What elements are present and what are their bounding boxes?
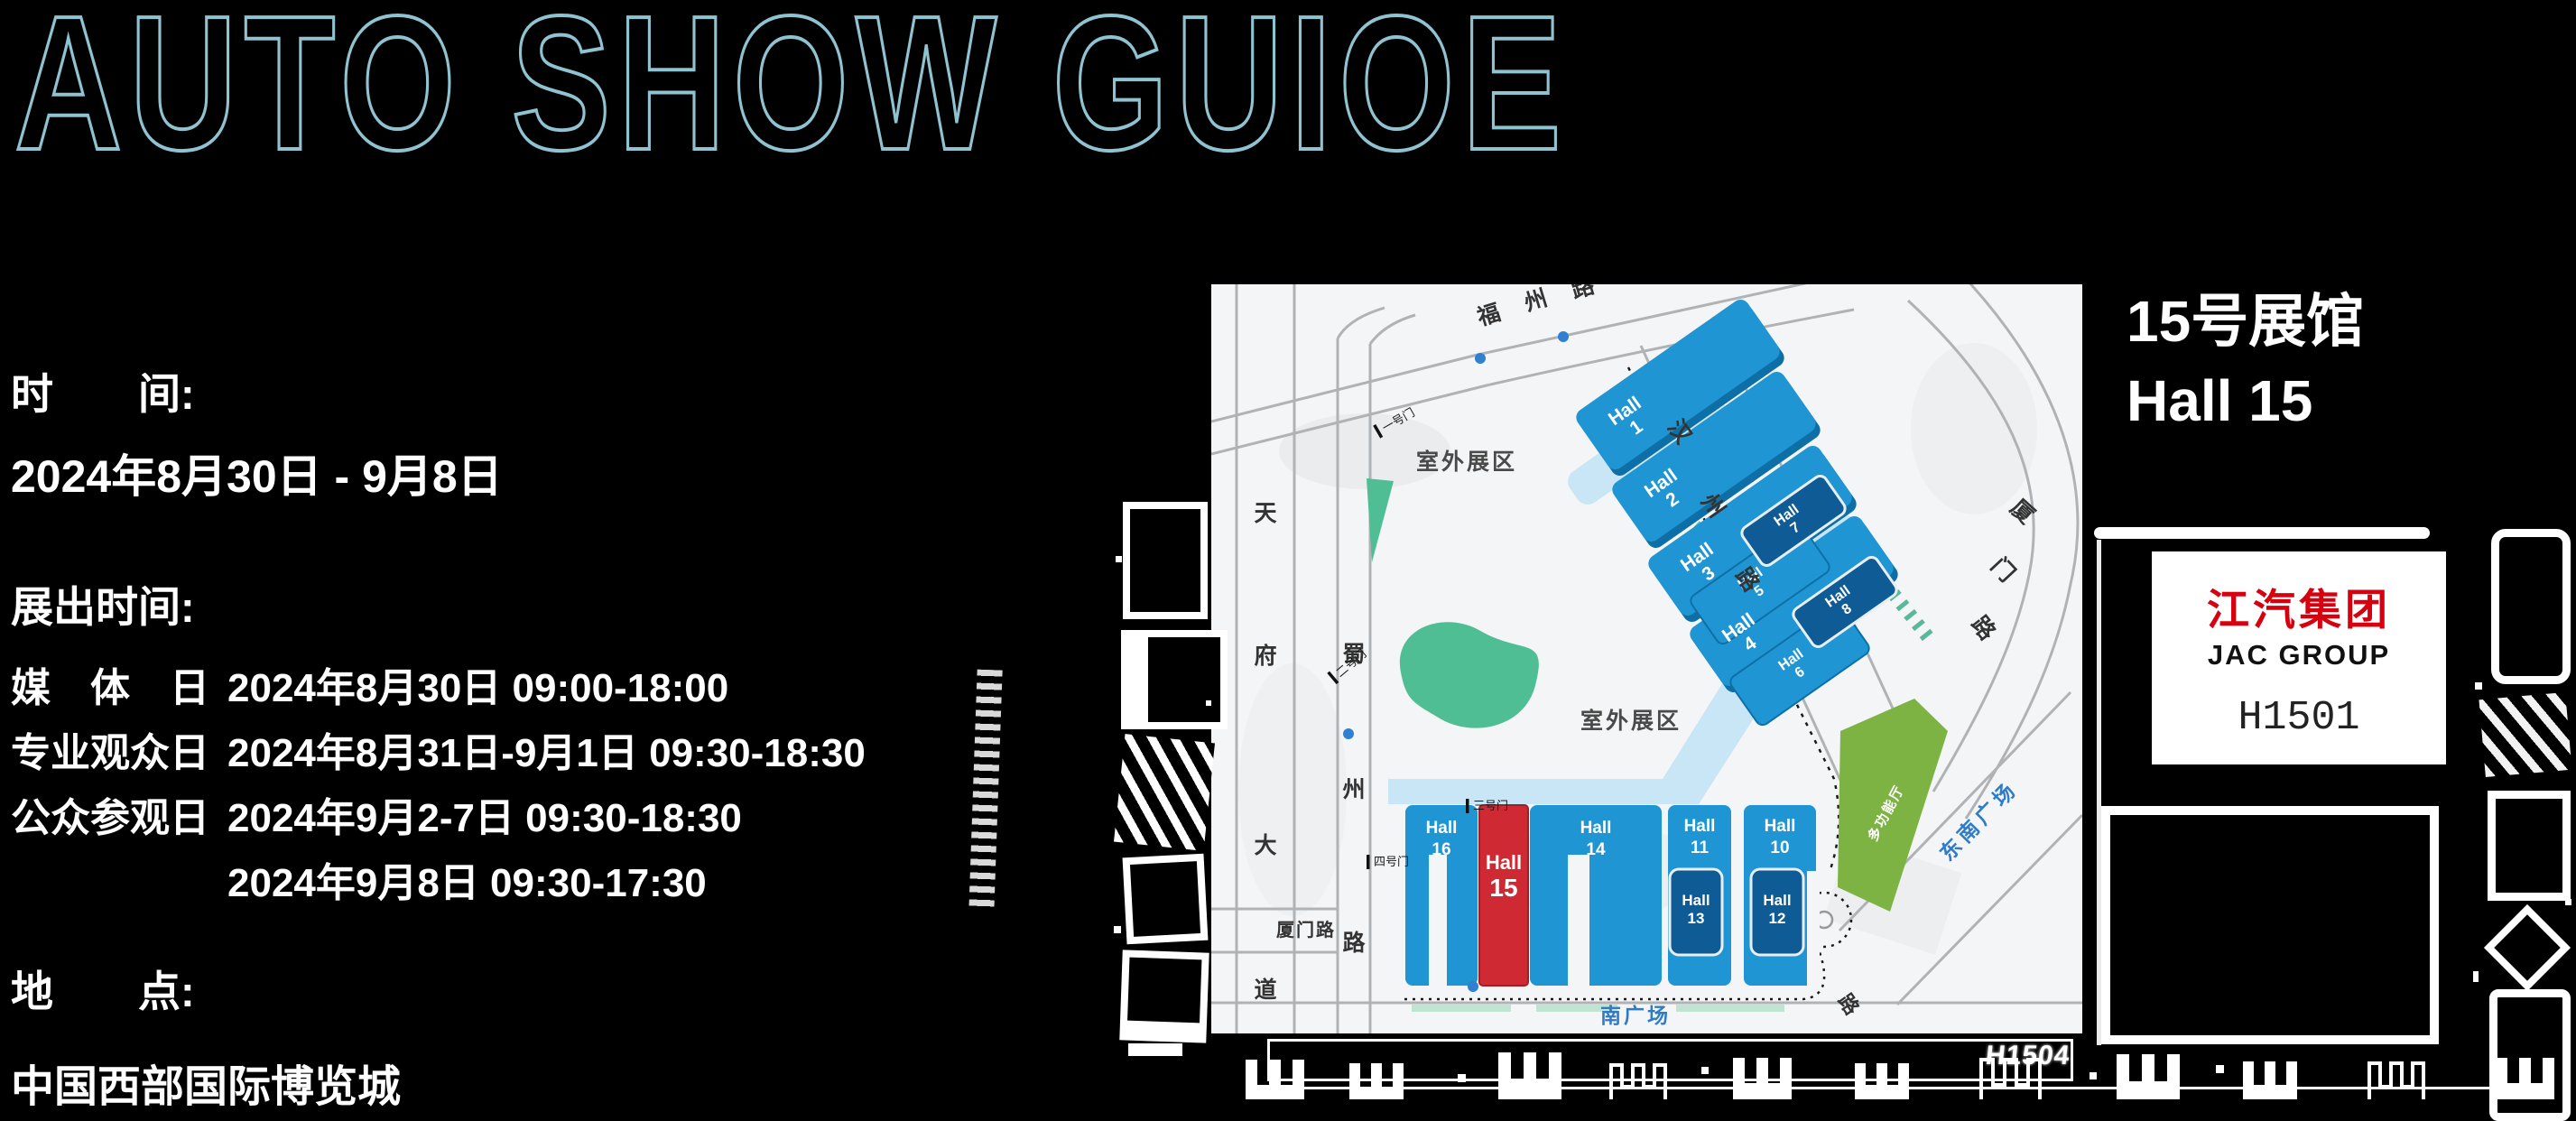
- time-value: 2024年8月30日 - 9月8日: [11, 440, 503, 505]
- svg-text:州: 州: [1342, 777, 1365, 802]
- schedule-row: 公众参观日2024年9月2-7日 09:30-18:30: [11, 785, 742, 843]
- svg-text:厦门路: 厦门路: [1276, 919, 1336, 940]
- place-label: 地 点:: [11, 957, 195, 1019]
- schedule-row: 专业观众日2024年8月31日-9月1日 09:30-18:30: [11, 720, 866, 778]
- exhibitor-logo-cn: 江汽集团: [2207, 575, 2391, 637]
- gate-3: 三号门: [1466, 799, 1508, 813]
- svg-text:Hall15: Hall15: [1486, 851, 1522, 902]
- venue-map-canvas: Hall1 Hall2 Hall3 Hall4 Hall5 Hall6 Hall…: [1211, 284, 2082, 1033]
- schedule-row-value: 2024年9月2-7日 09:30-18:30: [227, 796, 742, 840]
- svg-text:路: 路: [1834, 990, 1865, 1020]
- schedule-row-value: 2024年8月30日 09:00-18:00: [227, 666, 728, 710]
- svg-text:三号门: 三号门: [1473, 799, 1508, 812]
- glitch-column-left: [1119, 502, 1220, 1072]
- svg-text:路: 路: [1569, 284, 1598, 303]
- venue-map: Hall1 Hall2 Hall3 Hall4 Hall5 Hall6 Hall…: [1211, 284, 2082, 1089]
- booth-hall-title: 15号展馆 Hall 15: [2127, 282, 2364, 440]
- booth-hall-title-cn: 15号展馆: [2127, 282, 2364, 361]
- schedule-row-value: 2024年8月31日-9月1日 09:30-18:30: [227, 731, 866, 775]
- schedule-row: 媒 体 日2024年8月30日 09:00-18:00: [11, 655, 728, 713]
- pond: [1400, 622, 1539, 727]
- schedule-row-label: 公众参观日: [11, 785, 227, 843]
- svg-text:四号门: 四号门: [1374, 855, 1409, 868]
- schedule-row-label: 专业观众日: [11, 720, 227, 778]
- svg-text:府: 府: [1254, 643, 1276, 669]
- svg-text:路: 路: [1967, 612, 2001, 646]
- schedule-row-value: 2024年9月8日 09:30-17:30: [227, 861, 707, 905]
- exhibitor-logo-en: JAC GROUP: [2208, 639, 2390, 672]
- exhibitor-card: 江汽集团 JAC GROUP H1501: [2152, 551, 2446, 764]
- empty-booth-outline: [2101, 806, 2439, 1044]
- lawn-strips: [1412, 1005, 1784, 1012]
- glitch-noise-strip: [968, 670, 1002, 913]
- svg-text:路: 路: [1342, 931, 1366, 956]
- booth-hall-title-en: Hall 15: [2127, 361, 2364, 440]
- svg-text:室外展区: 室外展区: [1416, 449, 1517, 475]
- svg-text:南广场: 南广场: [1600, 1004, 1671, 1027]
- svg-text:大: 大: [1254, 833, 1276, 858]
- schedule-row-label: 媒 体 日: [11, 655, 227, 713]
- svg-text:东南广场: 东南广场: [1935, 776, 2023, 866]
- svg-text:门: 门: [1986, 552, 2020, 587]
- glitch-vertical-line: [2097, 540, 2101, 1045]
- page-title: AUTO SHOW GUIOE: [14, 0, 1569, 193]
- svg-text:福: 福: [1474, 300, 1504, 330]
- hours-label: 展出时间:: [11, 572, 195, 635]
- booth-number: H1501: [2238, 695, 2359, 741]
- svg-text:州: 州: [1522, 285, 1551, 316]
- page: { "header": { "title": "AUTO SHOW GUIOE"…: [0, 0, 2576, 1105]
- glitch-column-right: [2475, 520, 2576, 1105]
- gate-4: 四号门: [1367, 855, 1409, 869]
- svg-text:天: 天: [1254, 501, 1276, 526]
- glitch-building-row: [1232, 1034, 2576, 1105]
- svg-text:道: 道: [1254, 977, 1276, 1003]
- time-label: 时 间:: [11, 359, 195, 422]
- glitch-strip: [2094, 527, 2430, 539]
- svg-text:室外展区: 室外展区: [1580, 708, 1682, 734]
- schedule-row: 2024年9月8日 09:30-17:30: [11, 850, 707, 908]
